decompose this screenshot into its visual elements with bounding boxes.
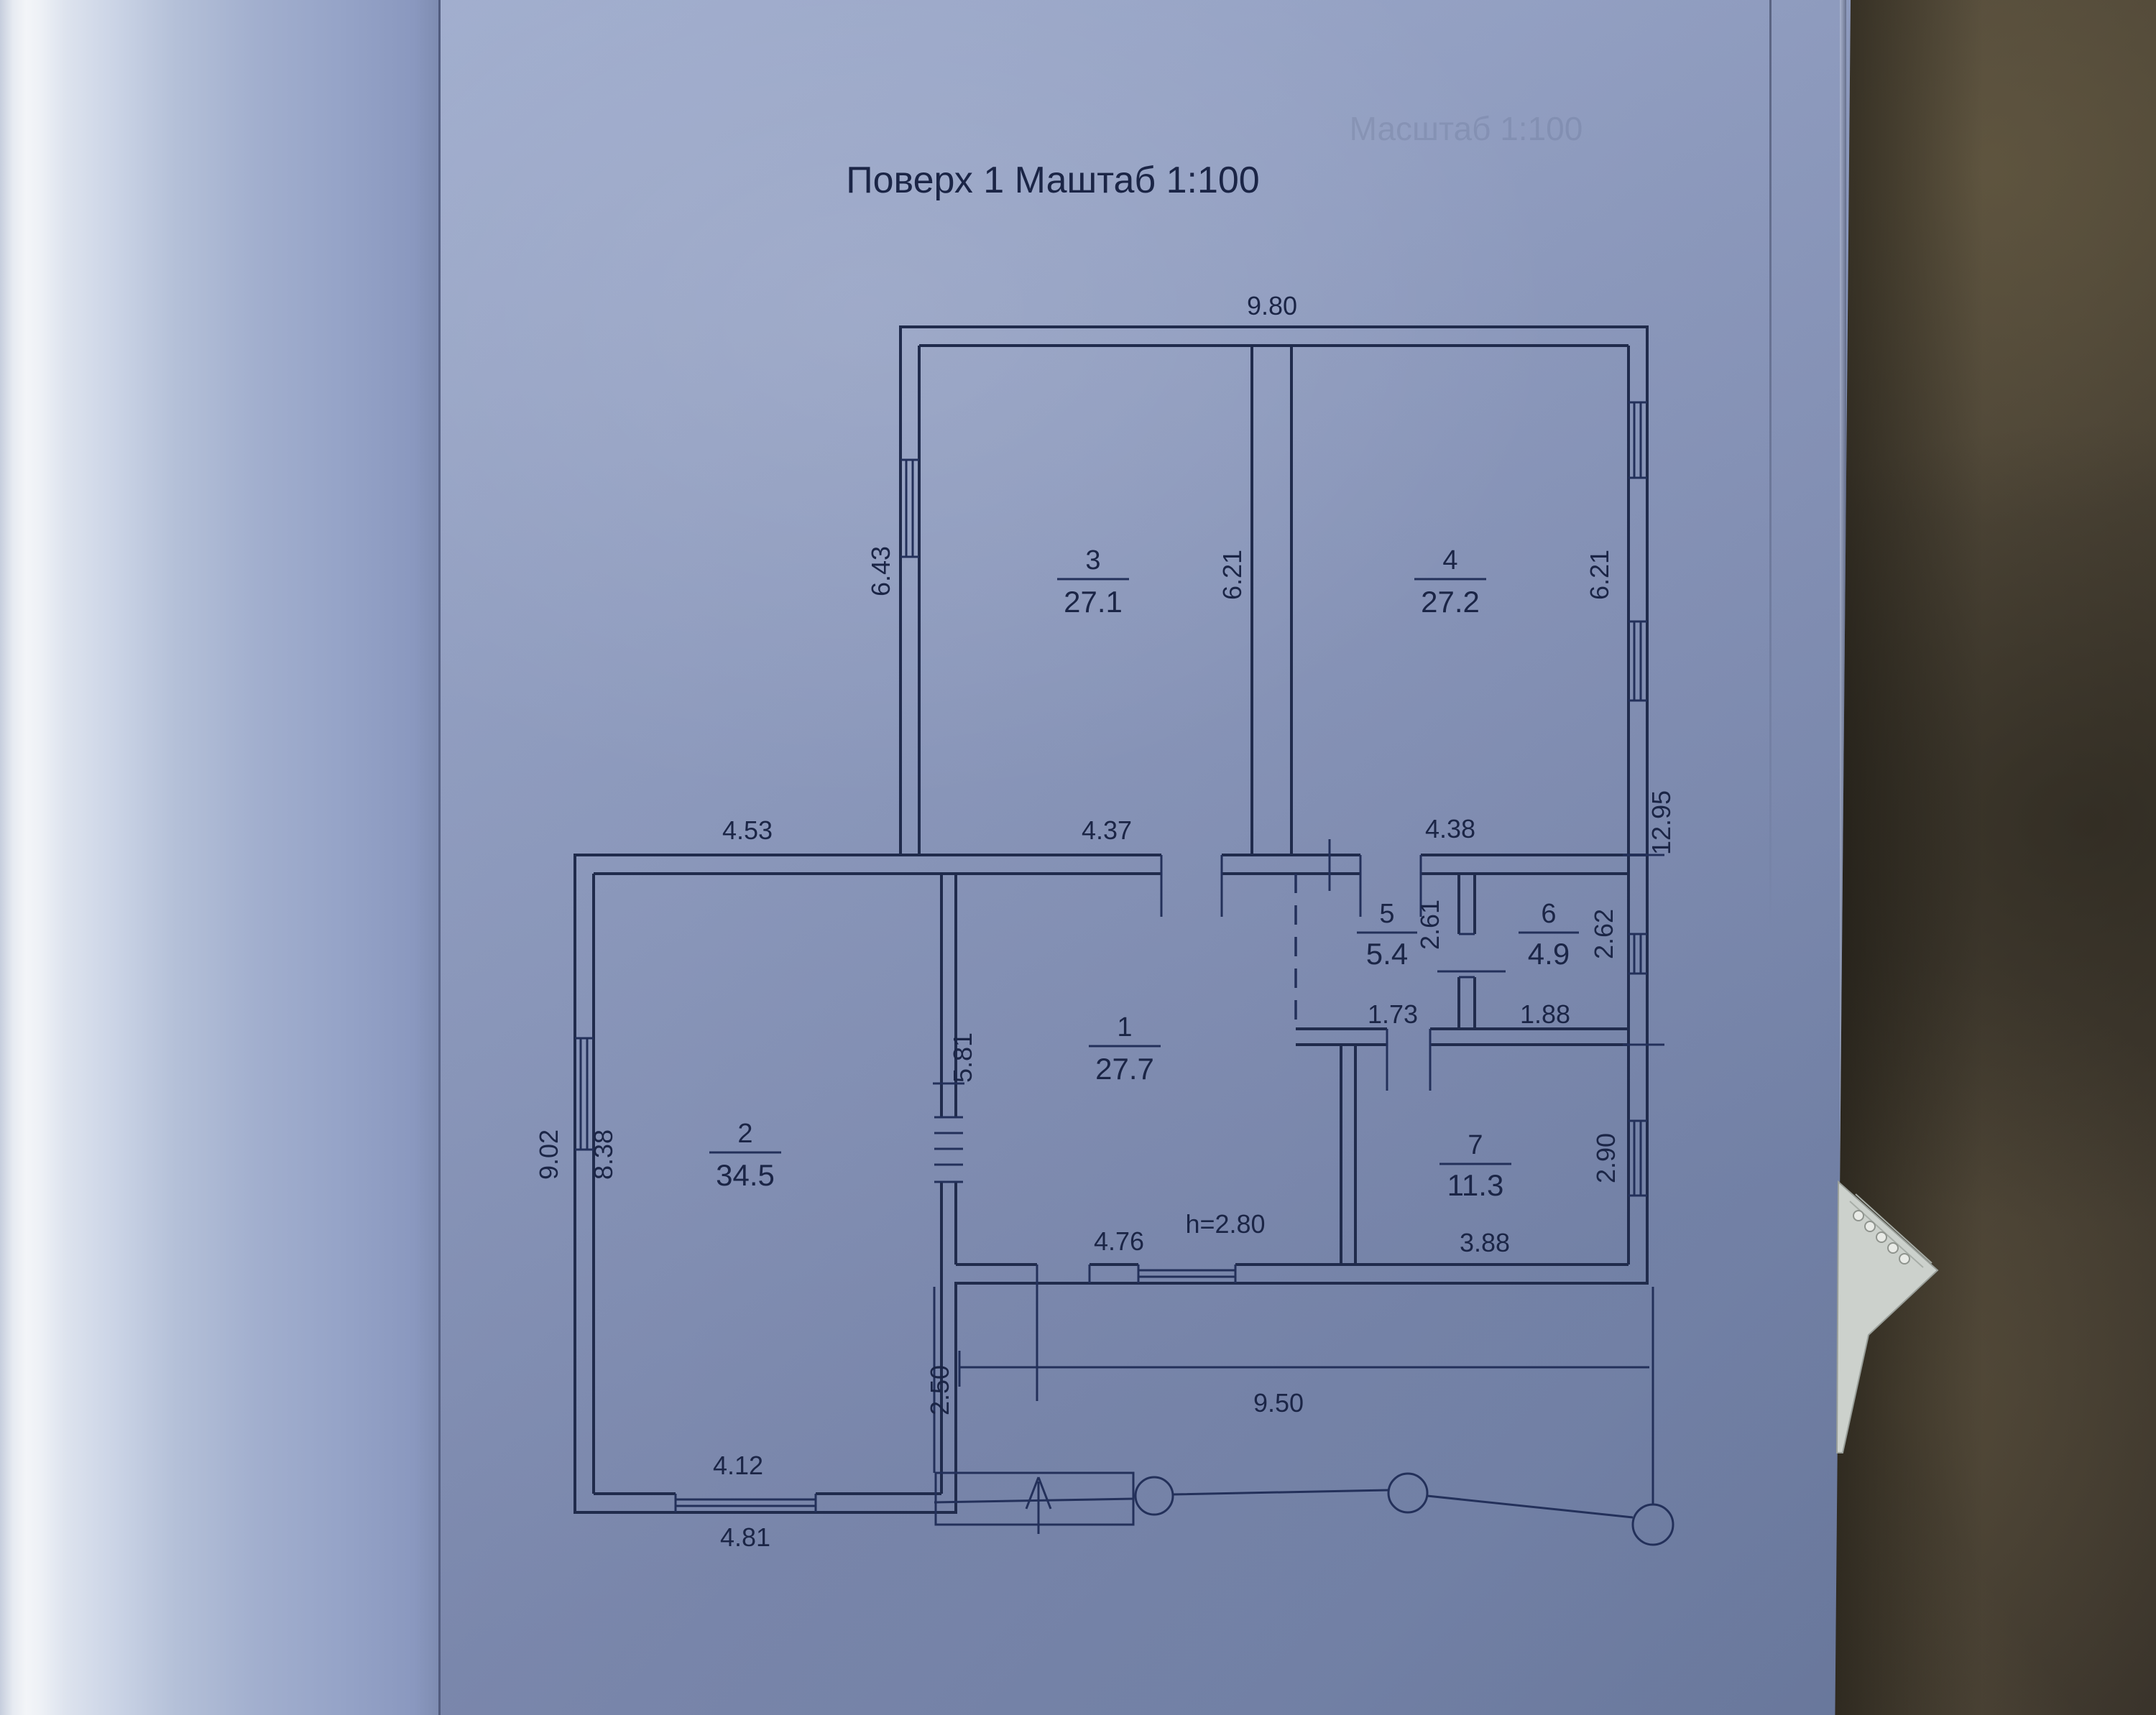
room-label-1: 1 27.7 bbox=[1089, 1012, 1161, 1086]
room2-area: 34.5 bbox=[716, 1158, 775, 1192]
dim-room3-bottom: 4.37 bbox=[1082, 815, 1132, 845]
door-room5-to-room7 bbox=[1387, 1029, 1430, 1091]
room6-number: 6 bbox=[1541, 899, 1556, 929]
note-ceiling-height: h=2.80 bbox=[1185, 1209, 1265, 1239]
dim-right-total-height: 12.95 bbox=[1646, 790, 1676, 855]
window-hall-south bbox=[1138, 1265, 1235, 1283]
room3-number: 3 bbox=[1085, 545, 1100, 575]
door-room5-to-room6 bbox=[1437, 934, 1506, 977]
window-room4-east-upper bbox=[1628, 402, 1647, 478]
room4-number: 4 bbox=[1442, 545, 1457, 575]
room-label-3: 3 27.1 bbox=[1057, 545, 1129, 619]
windows bbox=[575, 402, 1647, 1512]
room-label-5: 5 5.4 bbox=[1357, 899, 1417, 971]
bottom-dimension-line bbox=[959, 1351, 1649, 1387]
room4-area: 27.2 bbox=[1421, 585, 1480, 619]
dim-room1-bottom: 4.76 bbox=[1094, 1226, 1144, 1256]
dim-bottom-total: 9.50 bbox=[1253, 1388, 1304, 1418]
door-room3-to-hall bbox=[1161, 855, 1222, 917]
room7-left-wall bbox=[1341, 1045, 1355, 1265]
room2-walls bbox=[594, 874, 956, 1494]
rooms5-6-walls bbox=[1296, 874, 1628, 1045]
window-room7-east bbox=[1628, 1121, 1647, 1196]
door-hall-south bbox=[1037, 1265, 1089, 1401]
middle-wall bbox=[575, 855, 1647, 874]
dim-porch-depth: 2.50 bbox=[925, 1365, 954, 1415]
perforated-sheet-corner bbox=[1837, 1182, 1938, 1453]
interior-faces-top-block bbox=[919, 346, 1628, 1265]
dim-room5-height: 2.61 bbox=[1415, 900, 1445, 950]
plan-title: Поверх 1 Маштаб 1:100 bbox=[846, 160, 1259, 201]
binder-hole bbox=[1876, 1232, 1886, 1242]
bleed-through-text: Масштаб 1:100 bbox=[1350, 110, 1583, 147]
exterior-outline bbox=[575, 327, 1647, 1512]
dim-room7-bottom: 3.88 bbox=[1460, 1228, 1510, 1257]
room-label-4: 4 27.2 bbox=[1414, 545, 1486, 619]
dim-room2-top: 4.53 bbox=[722, 815, 773, 845]
room5-area: 5.4 bbox=[1366, 937, 1408, 971]
room7-number: 7 bbox=[1468, 1130, 1483, 1160]
binder-hole bbox=[1888, 1243, 1898, 1253]
porch-column-2 bbox=[1388, 1474, 1427, 1512]
binder-hole bbox=[1899, 1254, 1909, 1264]
room-label-2: 2 34.5 bbox=[709, 1119, 781, 1192]
porch-column-1 bbox=[1135, 1477, 1173, 1515]
room5-number: 5 bbox=[1379, 899, 1394, 929]
room-label-7: 7 11.3 bbox=[1439, 1130, 1511, 1202]
porch-edge-lines bbox=[1173, 1287, 1653, 1517]
dim-room2-bottom-inner: 4.12 bbox=[713, 1451, 763, 1480]
dim-room2-bottom-outer: 4.81 bbox=[720, 1522, 770, 1552]
room1-number: 1 bbox=[1117, 1012, 1132, 1043]
dim-room7-right-height: 2.90 bbox=[1591, 1133, 1621, 1183]
floor-plan-drawing: Масштаб 1:100 Поверх 1 Маштаб 1:100 bbox=[0, 0, 2156, 1715]
room-label-6: 6 4.9 bbox=[1519, 899, 1579, 971]
photo-of-floorplan-page: Масштаб 1:100 Поверх 1 Маштаб 1:100 bbox=[0, 0, 2156, 1715]
dim-room4-bottom: 4.38 bbox=[1425, 814, 1475, 843]
room6-area: 4.9 bbox=[1528, 937, 1570, 971]
dim-room2-left-outer: 9.02 bbox=[534, 1129, 563, 1180]
dimension-labels: 9.80 4.53 4.37 4.38 1.73 1.88 4.76 h=2.8… bbox=[534, 291, 1676, 1552]
room2-number: 2 bbox=[737, 1119, 752, 1149]
dim-room5-bottom: 1.73 bbox=[1368, 999, 1418, 1029]
room3-area: 27.1 bbox=[1064, 585, 1123, 619]
window-room6-east bbox=[1628, 934, 1647, 974]
porch-column-3 bbox=[1633, 1504, 1673, 1545]
dim-room1-left-height: 5.81 bbox=[948, 1032, 977, 1083]
window-room3-west bbox=[900, 460, 919, 557]
window-room2-south bbox=[676, 1494, 816, 1512]
binder-hole bbox=[1853, 1211, 1864, 1221]
window-room4-east-lower bbox=[1628, 621, 1647, 701]
binder-hole bbox=[1865, 1221, 1875, 1231]
dim-top-width: 9.80 bbox=[1247, 291, 1297, 320]
door-room2-to-hall bbox=[933, 1083, 964, 1182]
room7-area: 11.3 bbox=[1447, 1168, 1504, 1202]
dim-room3-right-height: 6.21 bbox=[1217, 550, 1247, 600]
exterior-walls bbox=[575, 327, 1647, 1512]
porch-mid-line bbox=[934, 1499, 1133, 1502]
dim-room2-left-inner: 8.38 bbox=[589, 1129, 618, 1180]
room1-area: 27.7 bbox=[1095, 1052, 1154, 1086]
dim-room4-right-height: 6.21 bbox=[1585, 550, 1614, 600]
dim-room3-left-height: 6.43 bbox=[866, 546, 895, 596]
dim-room6-height: 2.62 bbox=[1589, 909, 1618, 959]
dim-room6-bottom: 1.88 bbox=[1520, 999, 1570, 1029]
